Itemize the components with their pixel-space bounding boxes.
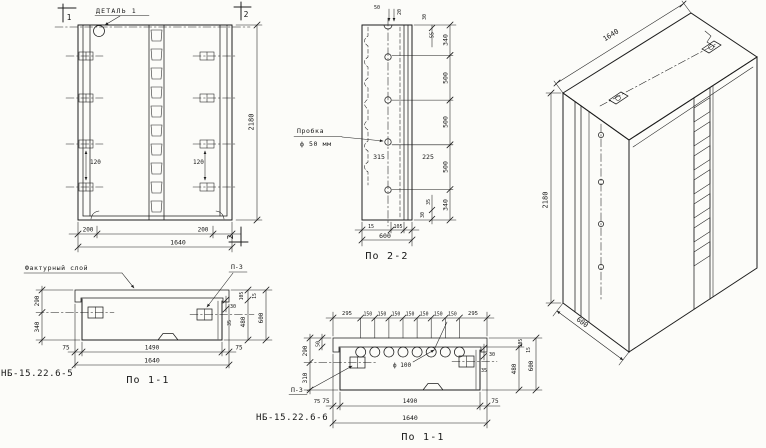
iso-lifting-sockets xyxy=(600,41,721,106)
bottom-key-notch xyxy=(423,384,443,391)
dim-label: 290 xyxy=(34,295,41,306)
dim-label: 30 xyxy=(422,14,428,20)
section-2-2-view: Пробка ф 50 мм 315 225 50 20 30 55 35 30… xyxy=(294,5,456,262)
plan-section-view-a: Фактурный слой П-3 290 340 30 35 105 15 … xyxy=(1,263,272,386)
dim-label: 600 xyxy=(528,360,535,371)
detail-callout: ДЕТАЛЬ 1 xyxy=(96,7,137,15)
dim-label: 35 xyxy=(426,199,432,205)
dim-label: 480 xyxy=(240,316,247,327)
bottom-dim-lines xyxy=(69,222,241,252)
dim-label: 1490 xyxy=(403,398,418,405)
dim-label: 2180 xyxy=(542,192,550,209)
embedded-plates xyxy=(66,52,236,191)
dim-label: 600 xyxy=(258,312,265,323)
dim-label: 310 xyxy=(302,372,309,383)
dim-label: 340 xyxy=(442,34,450,46)
dim-label: 225 xyxy=(422,153,434,161)
plan-section-view-b: 295 150 150 150 150 150 150 150 295 ф 1 xyxy=(256,311,542,443)
bottom-key-notch xyxy=(158,334,178,341)
dim-label: 150 xyxy=(420,312,429,318)
view-title: По 1-1 xyxy=(401,432,444,443)
dim-label: 500 xyxy=(442,72,450,84)
dim-label: 55 xyxy=(430,32,436,38)
textured-layer xyxy=(75,290,229,302)
cut-mark-label: 1 xyxy=(67,13,72,22)
section-cut-marks: 1 2 2 xyxy=(58,2,251,246)
dim-label: 1640 xyxy=(602,27,621,43)
dim-label: 50 xyxy=(316,341,322,347)
dim-label: 340 xyxy=(442,199,450,211)
blueprint-page: ДЕТАЛЬ 1 1 2 2 120 120 200 200 1640 xyxy=(0,0,766,448)
dim-label: 15 xyxy=(368,224,374,230)
dim-label: 30 xyxy=(489,352,495,358)
keyed-joint-strip xyxy=(149,25,164,220)
iso-top-face xyxy=(563,13,757,140)
drawing-canvas: ДЕТАЛЬ 1 1 2 2 120 120 200 200 1640 xyxy=(0,0,766,448)
dim-label: 30 xyxy=(420,212,426,218)
plan-a-left-chain xyxy=(36,286,80,345)
hole-row xyxy=(356,347,465,357)
dim-label: 15 xyxy=(252,293,258,299)
dim-label: 200 xyxy=(83,227,94,234)
dim-label: 35 xyxy=(227,320,233,326)
plate-callout: П-3 xyxy=(291,386,303,394)
iso-main-face xyxy=(629,57,757,352)
dim-label: 200 xyxy=(198,227,209,234)
view-title: По 2-2 xyxy=(365,251,408,262)
dim-label: 105 xyxy=(239,292,245,301)
dim-label: 1640 xyxy=(144,357,160,365)
panel-mark: НБ-15.22.6-6 xyxy=(256,413,328,423)
dim-label: 290 xyxy=(302,345,309,356)
iso-plug-holes xyxy=(598,124,603,300)
dim-label: 75 xyxy=(314,399,321,405)
dim-label: 50 xyxy=(374,5,380,11)
dim-label: 340 xyxy=(34,321,41,332)
dim-label: 150 xyxy=(448,312,457,318)
dim-label: 75 xyxy=(62,345,70,352)
dim-label: 150 xyxy=(392,312,401,318)
cut-mark-label: 2 xyxy=(244,10,249,19)
plate-callout: П-3 xyxy=(231,263,243,271)
dim-label: 150 xyxy=(434,312,443,318)
isometric-view: 1640 2180 600 xyxy=(542,1,758,365)
textured-layer-callout: Фактурный слой xyxy=(25,264,88,272)
detail-mark-circle xyxy=(94,26,105,37)
dim-label: 75 xyxy=(235,345,243,352)
dim-label: 480 xyxy=(511,363,518,374)
panel-body xyxy=(82,299,222,340)
dim-label: 600 xyxy=(575,315,590,329)
dim-label: 1490 xyxy=(145,345,160,352)
dim-label: 500 xyxy=(442,161,450,173)
plug-callout: ф 50 мм xyxy=(300,140,332,148)
dim-label: 15 xyxy=(526,347,532,353)
iso-side-face xyxy=(563,93,629,352)
dim-label: 150 xyxy=(378,312,387,318)
dim-label: 500 xyxy=(442,116,450,128)
keyed-edge-profile xyxy=(365,27,369,185)
dim-label: 120 xyxy=(90,159,101,166)
dim-label: 295 xyxy=(342,311,352,317)
iso-dims xyxy=(546,1,691,365)
dim-label: 105 xyxy=(393,224,402,230)
dim-label: 315 xyxy=(373,153,385,161)
dim-label: 1640 xyxy=(170,239,186,247)
plug-callout: Пробка xyxy=(297,127,324,135)
dim-label: 1640 xyxy=(402,414,418,422)
front-elevation-view: ДЕТАЛЬ 1 1 2 2 120 120 200 200 1640 xyxy=(55,2,262,252)
iso-keyed-groove xyxy=(694,86,713,309)
dim-label: 150 xyxy=(406,312,415,318)
dim-label: 105 xyxy=(518,339,524,348)
dim-label: 120 xyxy=(193,159,204,166)
dim-label: 295 xyxy=(468,311,478,317)
dim-label: 75 xyxy=(491,398,499,405)
dim-label: 2180 xyxy=(248,114,256,131)
dim-label: 600 xyxy=(379,232,391,240)
hole-callout: ф 100 xyxy=(393,362,411,369)
dim-label: 30 xyxy=(230,304,236,310)
corner-key-arc xyxy=(91,211,99,219)
panel-body xyxy=(340,348,480,390)
dim-label: 20 xyxy=(397,9,403,15)
dim-label: 150 xyxy=(363,312,372,318)
view-title: По 1-1 xyxy=(126,375,169,386)
dim-label: 75 xyxy=(322,398,330,405)
dim-label: 35 xyxy=(481,368,487,374)
panel-mark: НБ-15.22.6-5 xyxy=(1,369,73,379)
